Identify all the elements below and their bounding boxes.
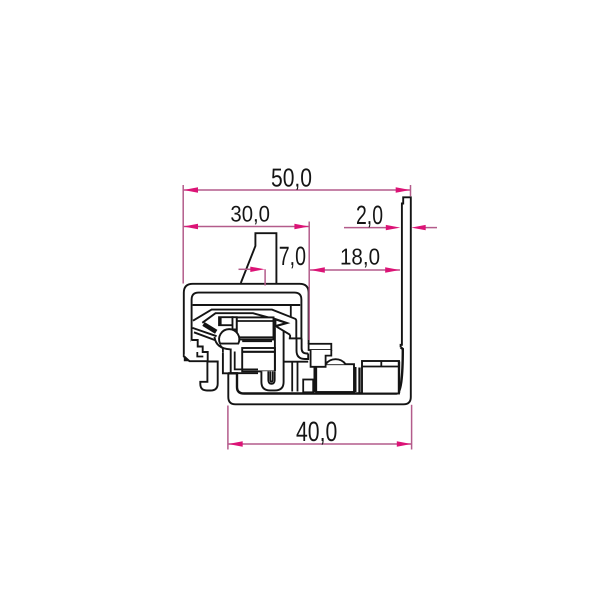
svg-text:18,0: 18,0 (340, 243, 380, 269)
svg-text:7,0: 7,0 (279, 241, 306, 271)
svg-text:30,0: 30,0 (230, 201, 270, 226)
svg-text:2,0: 2,0 (356, 200, 383, 230)
svg-text:40,0: 40,0 (296, 416, 337, 447)
svg-text:50,0: 50,0 (271, 163, 312, 193)
